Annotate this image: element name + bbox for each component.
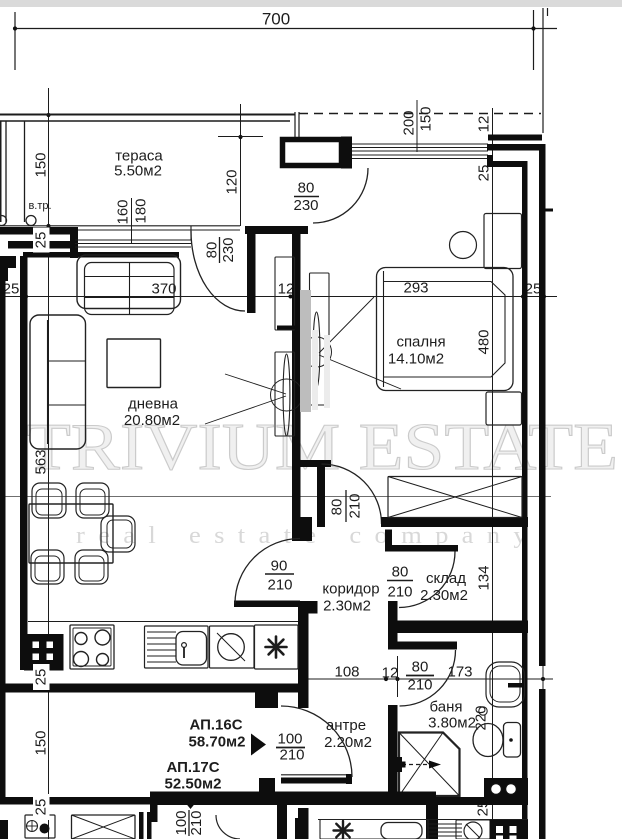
svg-text:134: 134 xyxy=(476,565,493,590)
svg-text:180: 180 xyxy=(133,198,150,223)
svg-text:АП.17С: АП.17С xyxy=(166,759,219,776)
svg-text:160: 160 xyxy=(115,199,132,224)
svg-text:АП.16С: АП.16С xyxy=(189,717,242,734)
svg-text:293: 293 xyxy=(403,280,428,297)
svg-text:108: 108 xyxy=(334,664,359,681)
svg-text:563: 563 xyxy=(33,449,50,474)
svg-text:120: 120 xyxy=(224,169,241,194)
svg-text:90: 90 xyxy=(271,558,288,575)
svg-text:склад: склад xyxy=(426,570,466,587)
svg-text:210: 210 xyxy=(387,584,412,601)
svg-text:210: 210 xyxy=(267,577,292,594)
svg-text:12: 12 xyxy=(278,281,295,298)
svg-text:20.80м2: 20.80м2 xyxy=(124,412,180,429)
svg-text:480: 480 xyxy=(476,329,493,354)
svg-text:12: 12 xyxy=(476,116,493,133)
svg-text:210: 210 xyxy=(188,810,205,835)
svg-text:80: 80 xyxy=(412,659,429,676)
svg-text:80: 80 xyxy=(392,564,409,581)
svg-text:дневна: дневна xyxy=(128,396,179,413)
svg-text:150: 150 xyxy=(418,106,435,131)
svg-text:2.30м2: 2.30м2 xyxy=(323,598,371,615)
svg-text:210: 210 xyxy=(347,493,364,518)
svg-text:25: 25 xyxy=(33,669,50,686)
svg-text:14.10м2: 14.10м2 xyxy=(388,351,444,368)
svg-text:80: 80 xyxy=(329,499,346,516)
svg-text:12: 12 xyxy=(382,665,399,682)
svg-text:370: 370 xyxy=(151,281,176,298)
svg-text:80: 80 xyxy=(204,242,221,259)
svg-text:80: 80 xyxy=(298,180,315,197)
svg-text:коридор: коридор xyxy=(322,581,379,598)
svg-text:100: 100 xyxy=(277,731,302,748)
svg-text:баня: баня xyxy=(430,699,463,716)
svg-text:спалня: спалня xyxy=(396,334,445,351)
svg-text:150: 150 xyxy=(33,730,50,755)
svg-text:25: 25 xyxy=(33,799,50,816)
svg-text:52.50м2: 52.50м2 xyxy=(165,776,222,793)
svg-text:150: 150 xyxy=(33,152,50,177)
svg-text:700: 700 xyxy=(262,10,290,29)
svg-text:58.70м2: 58.70м2 xyxy=(189,734,246,751)
svg-text:25: 25 xyxy=(476,165,493,182)
svg-text:230: 230 xyxy=(293,197,318,214)
svg-text:3.80м2: 3.80м2 xyxy=(428,715,476,732)
svg-text:210: 210 xyxy=(279,747,304,764)
svg-text:2.30м2: 2.30м2 xyxy=(420,587,468,604)
svg-text:210: 210 xyxy=(407,677,432,694)
svg-text:2.20м2: 2.20м2 xyxy=(324,734,372,751)
svg-text:230: 230 xyxy=(220,237,237,262)
svg-text:антре: антре xyxy=(326,717,366,734)
svg-text:25: 25 xyxy=(33,232,50,249)
svg-text:5.50м2: 5.50м2 xyxy=(114,163,162,180)
svg-text:в.тр.: в.тр. xyxy=(28,200,51,212)
